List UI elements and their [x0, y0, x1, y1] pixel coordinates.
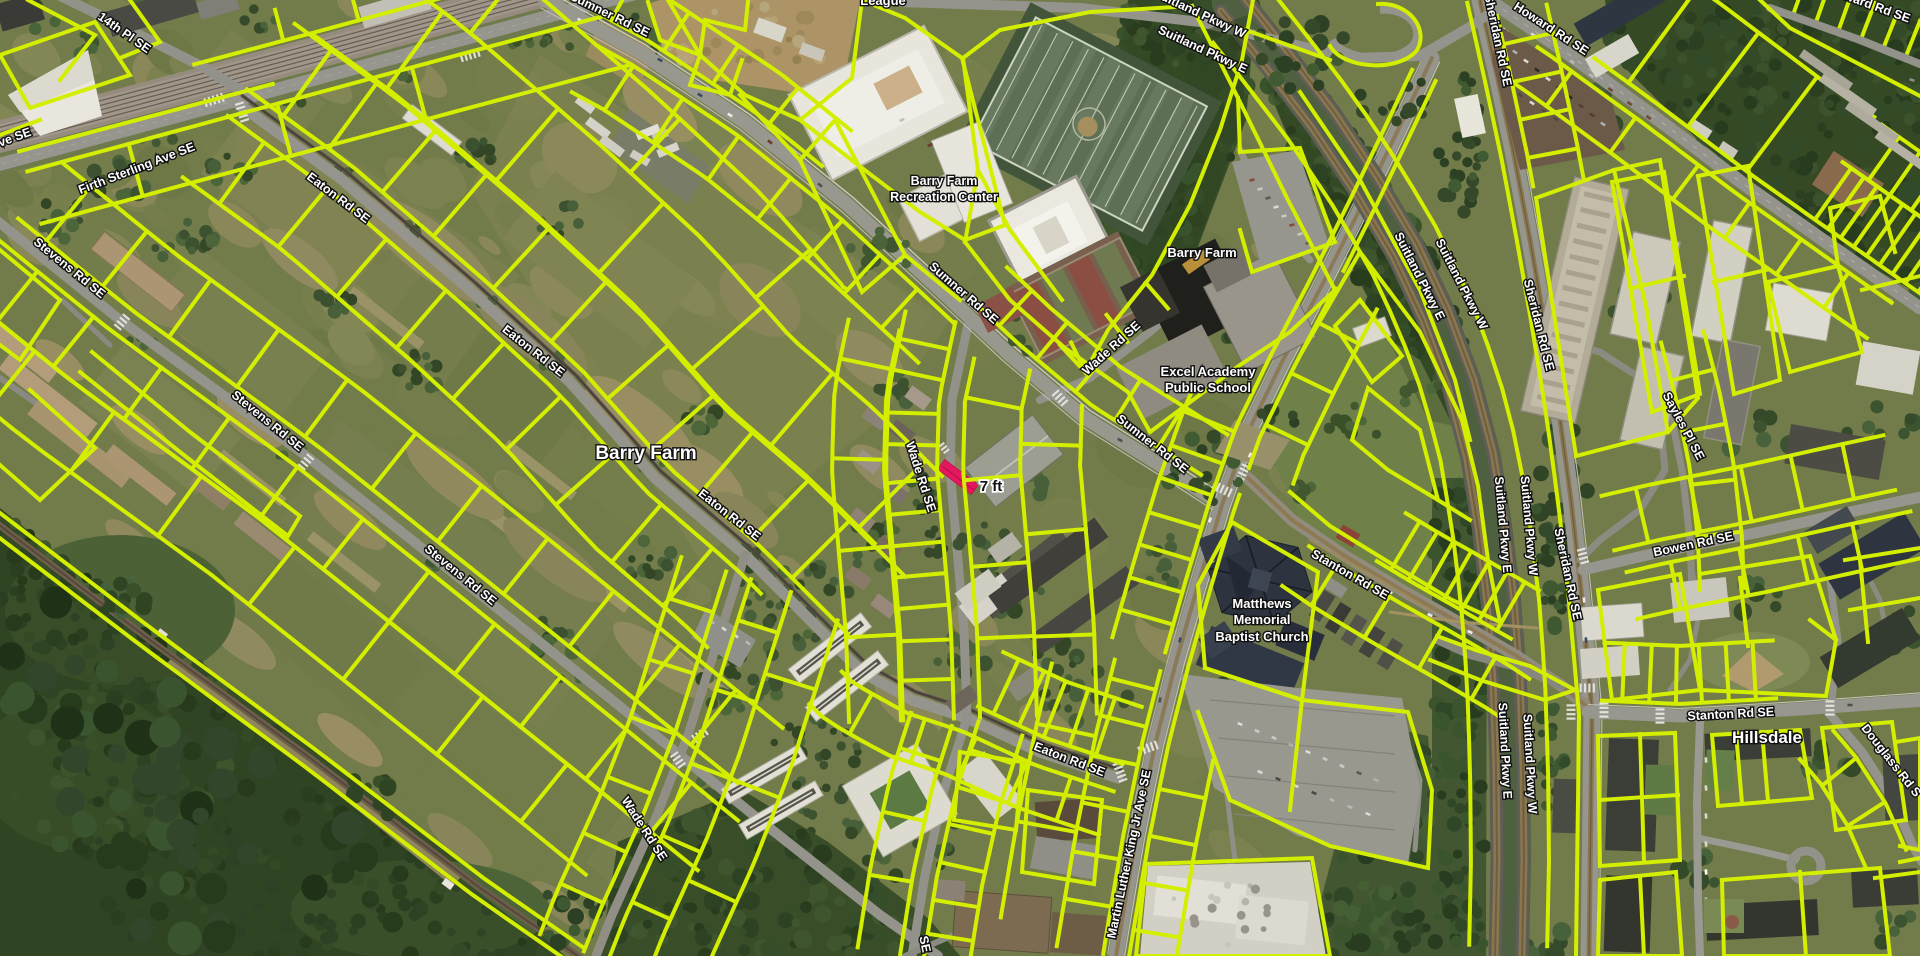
svg-text:Barry Farm: Barry Farm	[595, 443, 696, 464]
svg-text:League: League	[860, 0, 906, 8]
svg-text:Recreation Center: Recreation Center	[890, 190, 998, 204]
svg-text:Matthews: Matthews	[1232, 596, 1291, 611]
svg-text:7 ft: 7 ft	[980, 478, 1003, 495]
svg-text:Baptist Church: Baptist Church	[1215, 629, 1308, 644]
svg-text:Barry Farm: Barry Farm	[911, 174, 978, 188]
svg-text:Public School: Public School	[1165, 380, 1251, 395]
svg-text:Barry Farm: Barry Farm	[1167, 245, 1236, 260]
svg-text:Excel Academy: Excel Academy	[1161, 364, 1257, 379]
svg-text:Memorial: Memorial	[1233, 612, 1290, 627]
svg-text:Hillsdale: Hillsdale	[1732, 728, 1802, 747]
